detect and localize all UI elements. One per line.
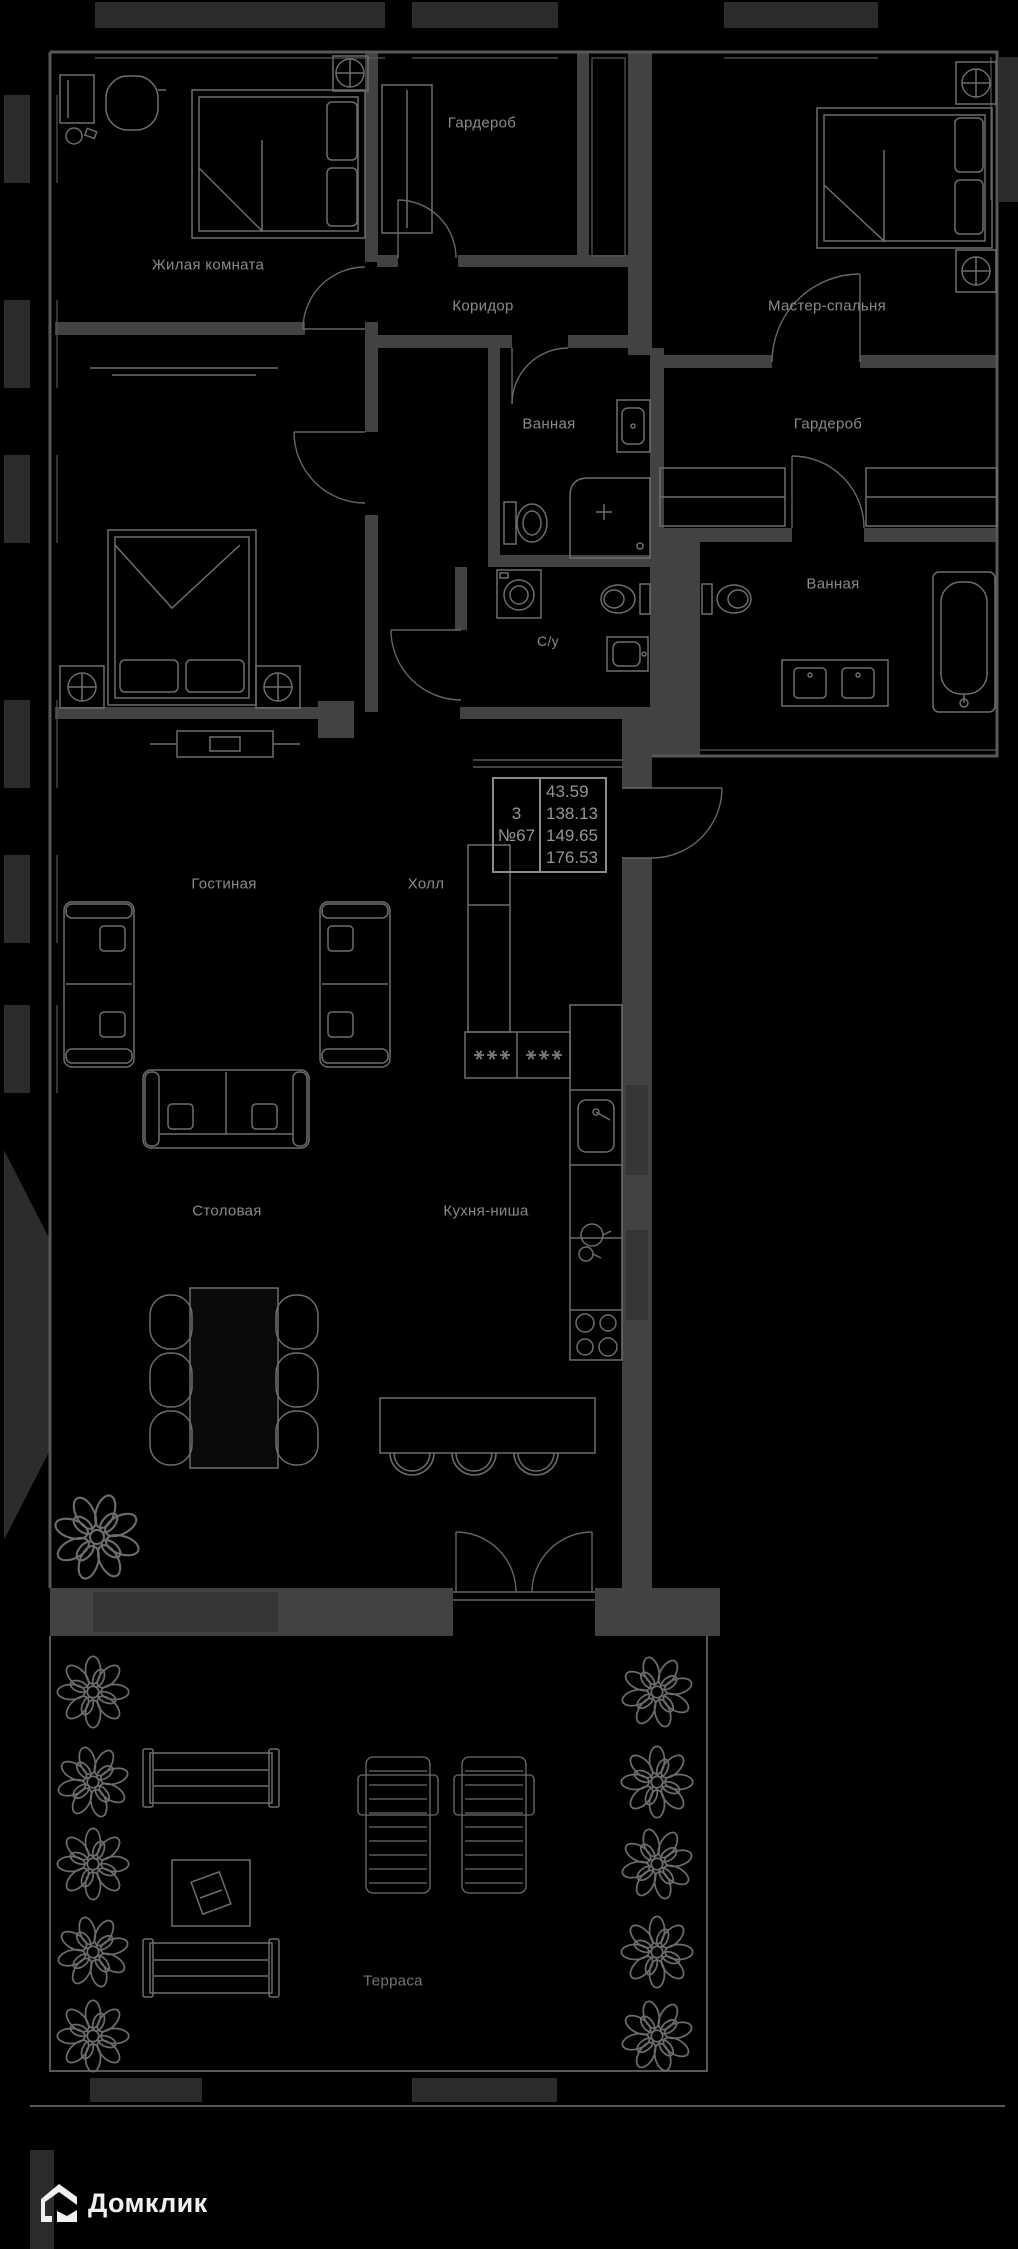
nightstand-lr2-2 [256, 666, 300, 708]
bed-living-room-2 [108, 530, 256, 705]
label-living-room-2: Гостиная [191, 876, 256, 893]
shaft [592, 58, 625, 256]
apartment-info-left: 3 №67 [494, 779, 541, 871]
domclick-logo: Домклик [40, 2183, 208, 2223]
terrace-bench-1 [143, 1749, 279, 1807]
logo-text: Домклик [88, 2188, 208, 2219]
kitchen-pots [579, 1224, 611, 1261]
kitchen-sink [578, 1100, 614, 1152]
nightstand-master-1 [956, 62, 996, 104]
toilet-bathroom-2 [702, 584, 751, 614]
label-dining-room: Столовая [192, 1203, 261, 1220]
sofa-bottom [143, 1070, 309, 1148]
desk-chair [106, 76, 166, 130]
label-living-room-1: Жилая комната [152, 257, 264, 274]
kitchen-tall-cabinet [468, 845, 510, 1032]
plant-living [42, 1482, 151, 1591]
area-value: 176.53 [546, 847, 605, 869]
sink-su [607, 637, 648, 671]
stove [576, 1314, 617, 1356]
desk [60, 75, 97, 144]
label-wardrobe-1: Гардероб [448, 115, 516, 132]
terrace-outline [50, 1636, 707, 2071]
apartment-info-box: 3 №67 43.59 138.13 149.65 176.53 [492, 777, 607, 873]
kitchen-counter-run [570, 1005, 622, 1360]
area-value: 43.59 [546, 781, 605, 803]
area-value: 138.13 [546, 803, 605, 825]
floorplan-drawing [0, 0, 1018, 2249]
sofa-right [320, 902, 390, 1067]
sink-bathroom-1 [617, 400, 650, 452]
sun-lounger-2 [454, 1757, 534, 1893]
kitchen-island [380, 1398, 595, 1475]
label-kitchen-niche: Кухня-ниша [443, 1203, 528, 1220]
area-value: 149.65 [546, 825, 605, 847]
terrace-rug [172, 1860, 250, 1926]
bathtub [933, 572, 995, 712]
doors [294, 200, 864, 1600]
bed-living-room-1 [192, 90, 365, 238]
label-bathroom-2: Ванная [806, 576, 859, 593]
sun-lounger-1 [358, 1757, 438, 1893]
label-hall: Холл [408, 876, 445, 893]
label-terrace: Терраса [363, 1973, 423, 1990]
shower [570, 478, 650, 558]
terrace-bench-2 [143, 1939, 279, 1997]
house-icon [40, 2183, 78, 2223]
floorplan-page: Жилая комната Гардероб Коридор Мастер-сп… [0, 0, 1018, 2249]
curtain [90, 368, 278, 375]
ceiling-symbol [333, 56, 368, 91]
bed-master [817, 108, 992, 248]
terrace-flowers [44, 1643, 705, 2084]
nightstand-lr2-1 [60, 666, 104, 708]
label-master-bedroom: Мастер-спальня [768, 298, 886, 315]
dining-table [190, 1288, 278, 1468]
tv-console [150, 731, 300, 757]
nightstand-master-2 [956, 250, 996, 292]
kitchen-hob-counter [465, 1032, 570, 1078]
toilet-su [601, 584, 650, 614]
wall-window-segments [93, 1085, 648, 1632]
sofa-left [64, 902, 134, 1067]
label-wardrobe-2: Гардероб [794, 416, 862, 433]
toilet-bathroom-1 [504, 502, 547, 544]
apartment-info-areas: 43.59 138.13 149.65 176.53 [541, 779, 605, 871]
wardrobe-1-closet [382, 85, 432, 233]
label-bathroom-1: Ванная [522, 416, 575, 433]
label-toilet: С/у [537, 633, 559, 649]
wardrobe-2-closets [660, 468, 997, 526]
french-doors [453, 1532, 595, 1600]
exterior-outline [30, 52, 1005, 2106]
label-corridor: Коридор [452, 298, 513, 315]
washing-machine [497, 570, 541, 618]
rooms-count: 3 [512, 803, 521, 825]
unit-number: №67 [498, 825, 535, 847]
vanity-double-sink [782, 660, 888, 706]
